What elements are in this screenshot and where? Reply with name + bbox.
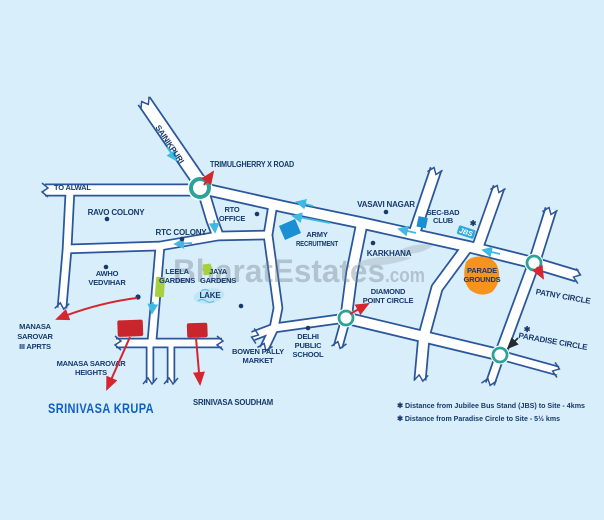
srinivasa-krupa-site-marker <box>117 320 143 337</box>
direction-arrow <box>214 220 215 232</box>
rto-office-dot <box>255 212 260 217</box>
map-canvas: BharatEstates.com <box>0 0 604 520</box>
label-lake: LAKE <box>200 291 222 300</box>
direction-arrow <box>175 243 192 244</box>
label-manasa-sarovar-apts: MANASASAROVARIII APRTS <box>17 322 53 351</box>
label-vasavi-nagar: VASAVI NAGAR <box>357 200 415 209</box>
direction-arrow <box>152 302 153 313</box>
jbs-distance-marker: ✱ <box>470 219 477 228</box>
ravo-colony-dot <box>105 217 110 222</box>
legend-line-1: ✱ Distance from Jubilee Bus Stand (JBS) … <box>397 401 585 410</box>
label-ravo-colony: RAVO COLONY <box>88 208 146 217</box>
location-map: BharatEstates.com <box>0 0 604 520</box>
delhi-public-school-dot <box>306 326 311 331</box>
lake-east-dot <box>239 304 244 309</box>
patny-circle <box>527 256 541 270</box>
site-name-srinivasa-krupa: SRINIVASA KRUPA <box>48 401 154 416</box>
legend-line-2: ✱ Distance from Paradise Circle to Site … <box>397 414 560 423</box>
label-karkhana: KARKHANA <box>367 249 412 258</box>
karkhana-dot <box>371 241 376 246</box>
paradise-circle <box>493 348 507 362</box>
label-to-alwal: TO ALWAL <box>54 183 91 192</box>
label-trimulgherry-x-road: TRIMULGHERRY X ROAD <box>210 160 294 169</box>
paradise-distance-marker: ✱ <box>524 325 531 334</box>
label-srinivasa-soudham: SRINIVASA SOUDHAM <box>193 398 274 407</box>
vasavi-nagar-dot <box>384 210 389 215</box>
label-rtc-colony: RTC COLONY <box>156 228 208 237</box>
rtc-colony-dot <box>180 237 185 242</box>
label-parade-grounds: PARADEGROUNDS <box>464 266 501 284</box>
srinivasa-soudham-site-marker <box>187 323 208 338</box>
